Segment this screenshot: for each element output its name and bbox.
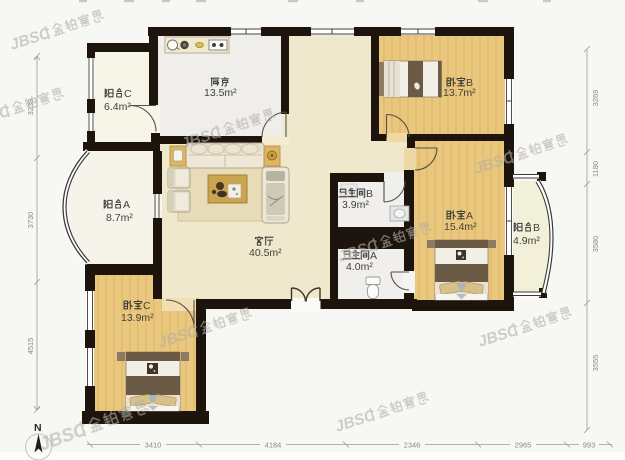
svg-text:3269: 3269 [591,90,600,107]
svg-text:C: C [124,88,132,100]
svg-text:3730: 3730 [26,212,35,229]
svg-text:1180: 1180 [591,161,600,177]
svg-text:8.7m²: 8.7m² [106,212,133,224]
svg-text:6.4m²: 6.4m² [104,101,131,113]
svg-text:3410: 3410 [145,441,162,450]
svg-text:13.5m²: 13.5m² [204,87,237,99]
svg-text:13.9m²: 13.9m² [121,312,154,324]
svg-text:3.9m²: 3.9m² [342,199,369,211]
svg-text:993: 993 [583,441,596,450]
svg-text:N: N [34,422,42,434]
svg-text:2965: 2965 [515,441,532,450]
svg-text:13.7m²: 13.7m² [443,87,476,99]
svg-text:4184: 4184 [265,441,282,450]
svg-text:3555: 3555 [591,355,600,372]
svg-text:15.4m²: 15.4m² [444,221,477,233]
svg-text:4.9m²: 4.9m² [513,235,540,247]
svg-text:B: B [533,222,540,234]
svg-text:2346: 2346 [404,441,421,450]
svg-text:40.5m²: 40.5m² [249,247,282,259]
svg-text:4515: 4515 [26,338,35,355]
svg-text:C: C [143,300,151,312]
svg-text:3580: 3580 [591,236,600,253]
svg-text:A: A [123,199,130,211]
